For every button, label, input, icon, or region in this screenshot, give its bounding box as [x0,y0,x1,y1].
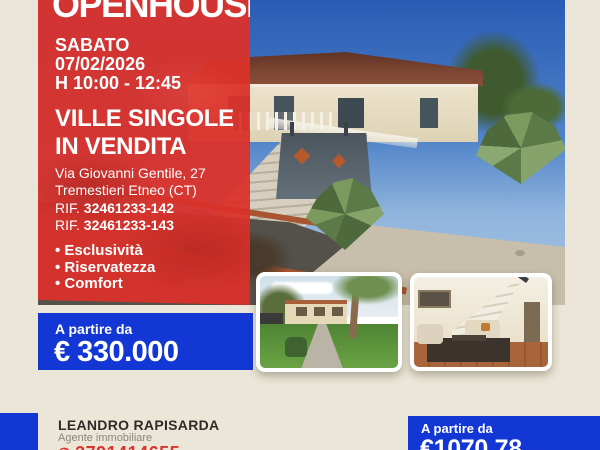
thumb-cushion [481,323,490,331]
thumb-picture-frame [418,290,451,308]
brand-title: OPENHOUSE [52,0,250,26]
thumb-sofa [417,324,444,344]
photo-finial [290,122,294,136]
listing-title: VILLE SINGOLE IN VENDITA [55,105,234,161]
photo-window [420,98,438,128]
price-box-secondary: A partire da €1070.78 [408,416,600,450]
listing-title-line2: IN VENDITA [55,133,234,161]
phone-icon: ✆ [58,446,71,450]
listing-references: RIF. 32461233-142 RIF. 32461233-143 [55,200,174,233]
red-info-panel: OPENHOUSE SABATO 07/02/2026 H 10:00 - 12… [38,0,250,305]
feature-item: Comfort [55,276,155,293]
thumb-windows [296,307,307,316]
thumb-doorway [524,302,540,342]
feature-item: Esclusività [55,243,155,260]
blue-corner-block [0,413,38,450]
thumbnail-interior-photo [410,273,552,371]
photo-window [338,98,364,128]
agent-phone: ✆3791414655 [58,443,180,450]
event-date: 07/02/2026 [55,55,181,73]
thumbnail-garden-photo [256,272,402,372]
feature-list: Esclusività Riservatezza Comfort [55,243,155,293]
address-line1: Via Giovanni Gentile, 27 [55,165,206,182]
thumb-shrub [285,337,307,357]
reference-2: RIF. 32461233-143 [55,217,174,234]
reference-1: RIF. 32461233-142 [55,200,174,217]
price-value: € 330.000 [54,336,179,369]
event-datetime: SABATO 07/02/2026 H 10:00 - 12:45 [55,36,181,93]
price-label: A partire da [55,321,132,337]
price-value: €1070.78 [420,435,522,450]
price-label: A partire da [421,421,493,436]
thumb-coffee-table [452,335,487,341]
open-house-flyer: OPENHOUSE SABATO 07/02/2026 H 10:00 - 12… [0,0,600,450]
feature-item: Riservatezza [55,260,155,277]
garden-scene [260,276,398,368]
address-line2: Tremestieri Etneo (CT) [55,182,206,199]
event-day: SABATO [55,36,181,54]
interior-scene [414,277,548,367]
photo-finial [344,122,348,136]
agent-phone-number: 3791414655 [75,443,180,450]
agent-name: LEANDRO RAPISARDA [58,417,219,433]
event-time: H 10:00 - 12:45 [55,74,181,92]
price-box-main: A partire da € 330.000 [38,313,253,370]
listing-title-line1: VILLE SINGOLE [55,105,234,133]
listing-address: Via Giovanni Gentile, 27 Tremestieri Etn… [55,165,206,199]
